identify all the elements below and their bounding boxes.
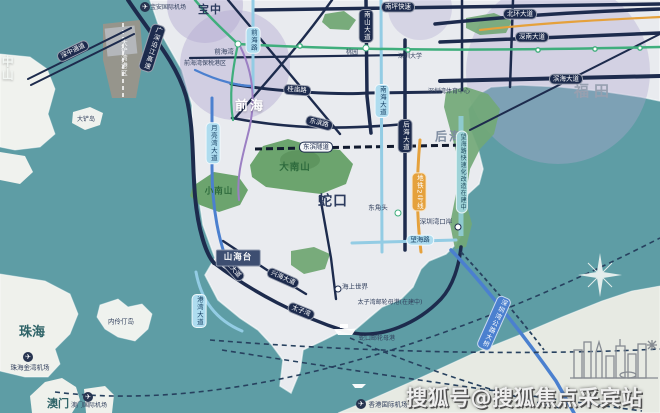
poi-shenzhen-university: 深圳大学 (398, 54, 422, 60)
port-dachanwan: 大铲湾港区 (120, 39, 127, 77)
poi-taiziwan-cruise-port: 太子湾邮轮母港(在建中) (358, 300, 423, 306)
road-taiziwan: 太子湾 (286, 301, 316, 321)
station-shenzhenwan-port (455, 224, 462, 231)
station-dongjiaotou-label: 东角头 (368, 205, 388, 212)
road-guimiao-rd: 桂庙路 (283, 84, 311, 97)
airport-macau: 澳门国际机场 (71, 403, 107, 409)
road-shennan-blvd: 深南大道 (515, 32, 549, 43)
hongkong-skyline-icon (568, 336, 660, 382)
station-sea-world (335, 286, 342, 293)
region-futian: 福田 (574, 84, 614, 100)
plane-icon-zhuhai: ✈ (23, 352, 33, 362)
mountain-dananshan: 大南山 (279, 163, 311, 173)
watermark-text: 搜狐号@搜狐焦点采宾站 (406, 386, 643, 410)
region-zhongshan: 中山 (1, 55, 14, 81)
road-shenzhenwan-bridge: 深圳湾公路大桥 (476, 294, 513, 352)
station-qianhaiwan (235, 41, 242, 48)
watermark: 搜狐号@搜狐焦点采宾站 (406, 382, 643, 412)
metro-line2: 地铁2号线 (412, 172, 427, 211)
road-nanping-expwy: 南坪快速 (381, 2, 415, 13)
poi-shekou-cruise-port: 蛇口邮轮母港 (359, 336, 395, 342)
poi-shenzhenwan-sports-center: 深圳湾体育中心 (428, 89, 470, 95)
plane-icon-macau: ✈ (83, 392, 93, 402)
label-layer: 中山珠海澳门内伶仃岛大铲岛前海后海蛇口福田宝中大南山小南山广深沿江高速南坪快速北… (0, 0, 660, 413)
station-qianhaiwan-label: 前海湾 (214, 49, 234, 56)
island-neilingding: 内伶仃岛 (108, 319, 134, 326)
road-wanghai-upgrade: 望海路快速化改造在建中 (456, 131, 468, 214)
road-nanshan-blvd: 南山大道 (359, 9, 374, 43)
project-shanhaitai: 山海台 (216, 250, 261, 267)
station-taoyuan-label: 桃园 (346, 50, 358, 56)
station-shenzhenwan-port-label: 深圳湾口岸 (420, 219, 453, 226)
station-taoyuan (363, 45, 370, 52)
road-dongbin-tunnel: 东滨隧道 (299, 142, 333, 153)
plane-icon-baoan: ✈ (140, 2, 150, 12)
road-wanghai-rd: 望海路 (406, 235, 434, 246)
region-macau: 澳门 (47, 398, 69, 410)
road-yueliangwan-blvd: 月亮湾大道 (206, 122, 221, 164)
region-baozhong: 宝中 (198, 4, 222, 16)
airport-hongkong: 香港国际机场 (369, 402, 408, 409)
road-houhai-blvd: 后海大道 (398, 119, 413, 153)
region-zhuhai: 珠海 (19, 326, 45, 340)
road-beihuan-blvd: 北环大道 (503, 9, 537, 20)
airport-zhuhai-jinwan: 珠海金湾机场 (11, 365, 50, 372)
road-guangshen-riverside-expwy: 广深沿江高速 (137, 22, 166, 73)
station-sea-world-label: 海上世界 (342, 284, 368, 291)
road-nanhai-blvd: 南海大道 (375, 84, 390, 118)
road-dongbin-rd: 东滨路 (304, 114, 333, 131)
plane-icon-hongkong: ✈ (356, 399, 366, 409)
road-xinghai-blvd: 兴海大道 (265, 266, 300, 290)
road-binhai-blvd: 滨海大道 (549, 74, 583, 85)
airport-baoan: 宝安国际机场 (150, 5, 186, 11)
station-dongjiaotou (395, 210, 402, 217)
mountain-xiaonanshan: 小南山 (205, 188, 234, 197)
region-qianhai: 前海 (235, 100, 265, 114)
road-gangwan-blvd: 港湾大道 (192, 294, 207, 328)
map-canvas: 中山珠海澳门内伶仃岛大铲岛前海后海蛇口福田宝中大南山小南山广深沿江高速南坪快速北… (0, 0, 660, 413)
poi-qianhaiwan-bonded-port: 前海湾保税港区 (184, 61, 226, 67)
road-shenzhong-corridor: 深中通道 (55, 39, 90, 64)
island-dachan: 大铲岛 (77, 117, 95, 123)
road-qianhai-rd: 前海路 (246, 27, 261, 54)
region-shekou: 蛇口 (318, 195, 348, 210)
